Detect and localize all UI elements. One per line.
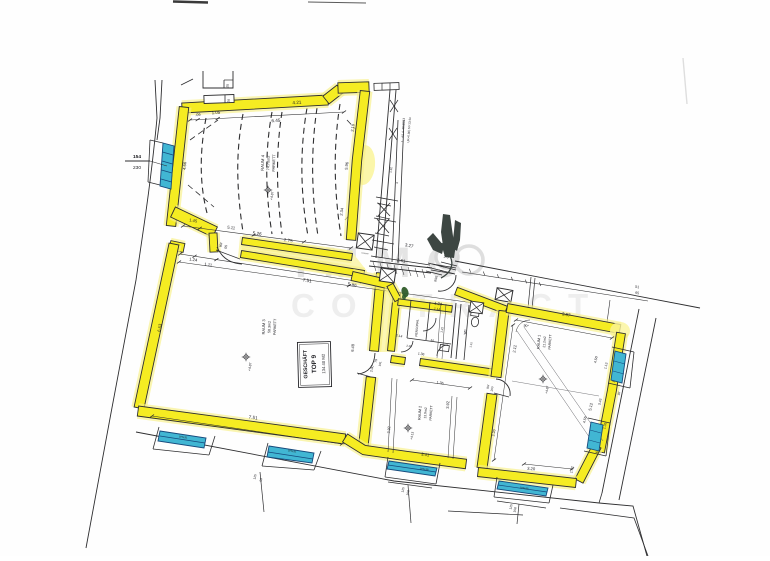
svg-text:58.3m2: 58.3m2 [267, 321, 271, 333]
svg-text:TOP 9: TOP 9 [311, 354, 318, 373]
svg-text:65: 65 [635, 291, 640, 296]
svg-text:4.66: 4.66 [182, 161, 188, 170]
svg-text:GESCHÄFT: GESCHÄFT [302, 349, 310, 379]
svg-text:13.9m2: 13.9m2 [423, 407, 428, 419]
svg-text:154: 154 [133, 154, 141, 160]
svg-text:.09: .09 [195, 113, 200, 117]
svg-text:1.32: 1.32 [389, 167, 393, 173]
svg-text:6.48: 6.48 [350, 343, 356, 352]
svg-text:6.45: 6.45 [271, 118, 281, 123]
svg-text:90/: 90/ [219, 242, 224, 247]
svg-text:51: 51 [635, 285, 640, 290]
svg-text:1.05: 1.05 [212, 110, 221, 115]
svg-text:230: 230 [133, 165, 141, 171]
svg-text:4.21: 4.21 [292, 100, 302, 105]
svg-text:RAUM 3: RAUM 3 [261, 319, 267, 335]
svg-text:74.70m2: 74.70m2 [266, 156, 271, 171]
svg-text:PARKETT: PARKETT [273, 318, 278, 335]
svg-text:PARKETT: PARKETT [272, 154, 277, 172]
svg-text:21.2m2: 21.2m2 [542, 336, 547, 348]
svg-text:3.20: 3.20 [527, 466, 536, 472]
svg-text:RAUM 4: RAUM 4 [260, 154, 266, 171]
svg-text:3.92: 3.92 [445, 400, 451, 409]
svg-text:134.40 M2: 134.40 M2 [321, 353, 327, 374]
